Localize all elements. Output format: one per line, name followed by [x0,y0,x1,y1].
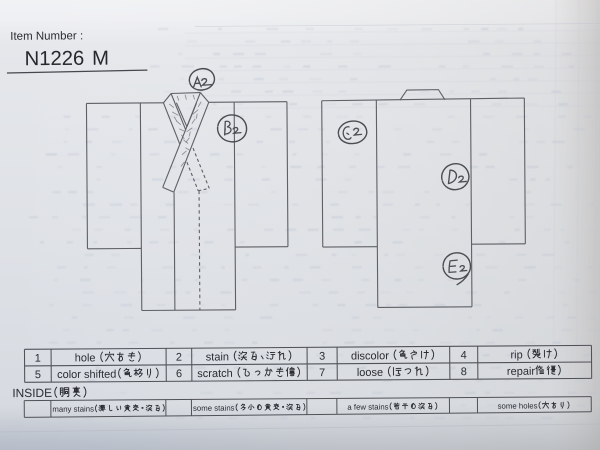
svg-text:rip: rip [510,349,522,361]
svg-text:N1226: N1226 [24,48,84,70]
svg-text:Item Number :: Item Number : [10,30,83,43]
svg-text:stain: stain [206,351,229,363]
svg-text:M: M [92,48,109,70]
svg-text:many stains: many stains [52,405,94,414]
svg-text:3: 3 [319,351,325,363]
svg-text:8: 8 [461,366,467,378]
svg-text:loose: loose [357,367,383,379]
svg-text:some holes: some holes [498,401,538,410]
svg-text:4: 4 [461,350,467,362]
svg-text:1: 1 [35,353,41,365]
svg-text:5: 5 [35,369,41,381]
svg-text:repair: repair [507,366,536,378]
svg-text:INSIDE: INSIDE [12,386,52,400]
svg-text:6: 6 [176,368,182,380]
svg-text:color shifted: color shifted [57,369,116,381]
svg-text:scratch: scratch [197,368,233,380]
svg-text:a few stains: a few stains [347,402,388,411]
svg-text:some stains: some stains [193,404,235,413]
svg-text:7: 7 [319,367,325,379]
svg-text:2: 2 [176,352,182,364]
svg-text:hole: hole [75,352,96,364]
svg-text:discolor: discolor [351,350,389,362]
